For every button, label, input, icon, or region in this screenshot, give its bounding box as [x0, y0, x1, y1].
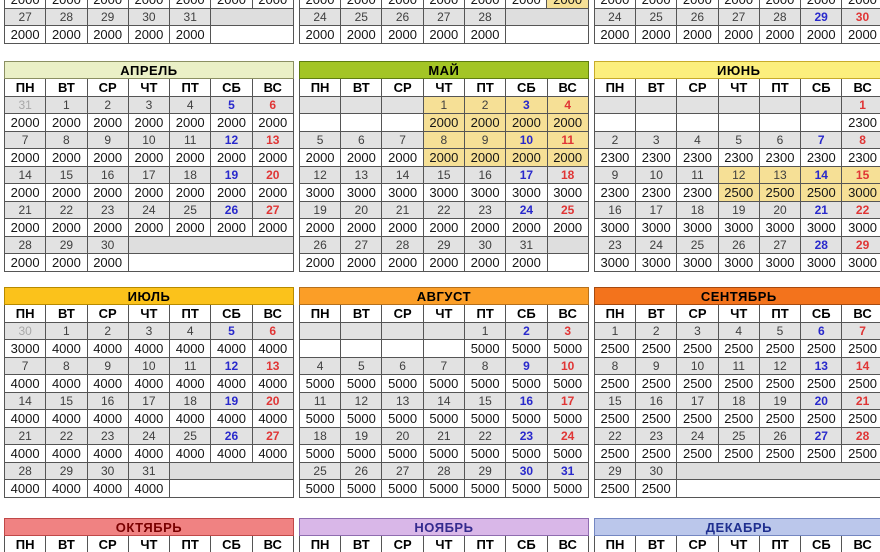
price-cell: 5000	[423, 480, 464, 498]
price-cell: 2500	[636, 480, 677, 498]
price-cell: 2000	[5, 149, 46, 167]
price-cell: 2000	[465, 254, 506, 272]
empty-day-cell	[677, 97, 718, 114]
day-cell: 10	[547, 358, 588, 375]
empty-day-cell	[341, 97, 382, 114]
price-cell: 2000	[635, 0, 676, 9]
day-cell: 6	[252, 97, 293, 114]
price-cell: 2000	[252, 219, 293, 237]
month-april: АПРЕЛЬПНВТСРЧТПТСБВС31123456200020002000…	[4, 61, 294, 272]
weekday-label: СБ	[506, 536, 547, 552]
price-cell: 2000	[170, 26, 211, 44]
day-cell: 15	[423, 167, 464, 184]
price-cell: 5000	[506, 340, 547, 358]
price-cell: 4000	[5, 480, 46, 498]
price-cell: 2300	[677, 149, 718, 167]
price-cell: 4000	[252, 375, 293, 393]
price-cell: 5000	[382, 445, 423, 463]
day-cell: 18	[718, 393, 759, 410]
price-cell: 5000	[547, 375, 588, 393]
price-cell: 2000	[464, 0, 505, 9]
price-cell: 3000	[842, 254, 880, 272]
day-cell: 25	[341, 9, 382, 26]
price-cell: 5000	[506, 375, 547, 393]
price-cell: 2000	[211, 219, 252, 237]
price-cell: 4000	[252, 340, 293, 358]
month-title: ИЮЛЬ	[5, 288, 294, 305]
day-cell: 29	[594, 463, 635, 480]
day-cell: 15	[46, 167, 87, 184]
day-cell: 4	[170, 97, 211, 114]
price-cell: 5000	[506, 445, 547, 463]
day-cell: 5	[211, 97, 252, 114]
empty-price-cell	[382, 340, 423, 358]
day-cell: 3	[547, 323, 588, 340]
day-cell: 12	[759, 358, 800, 375]
day-cell: 19	[211, 393, 252, 410]
weekday-label: СБ	[506, 305, 547, 323]
day-cell: 23	[506, 428, 547, 445]
price-cell: 2000	[423, 219, 464, 237]
day-cell: 27	[718, 9, 759, 26]
price-cell: 5000	[423, 445, 464, 463]
day-cell: 20	[252, 393, 293, 410]
day-cell: 14	[382, 167, 423, 184]
weekday-label: СБ	[211, 305, 252, 323]
price-cell: 2000	[842, 26, 880, 44]
price-cell: 2000	[299, 219, 340, 237]
day-cell: 10	[506, 132, 547, 149]
day-cell: 27	[252, 202, 293, 219]
price-cell: 2000	[5, 26, 46, 44]
price-cell: 2000	[170, 149, 211, 167]
empty-day-cell	[382, 323, 423, 340]
weekday-label: СБ	[506, 79, 547, 97]
day-cell: 17	[636, 202, 677, 219]
price-cell: 5000	[547, 340, 588, 358]
day-cell: 4	[547, 97, 588, 114]
weekday-label: ВС	[842, 536, 880, 552]
price-cell: 2000	[423, 254, 464, 272]
price-cell: 2500	[718, 375, 759, 393]
price-cell: 4000	[211, 410, 252, 428]
day-cell: 31	[506, 237, 547, 254]
weekday-label: СБ	[801, 79, 842, 97]
price-cell: 2500	[636, 410, 677, 428]
day-cell: 16	[87, 167, 128, 184]
day-cell: 16	[87, 393, 128, 410]
weekday-label: ПТ	[465, 305, 506, 323]
day-cell: 17	[128, 393, 169, 410]
price-cell: 2000	[299, 0, 340, 9]
empty-trailing-prices	[547, 254, 588, 272]
price-cell: 2000	[423, 114, 464, 132]
price-cell: 4000	[211, 445, 252, 463]
price-cell: 2000	[299, 149, 340, 167]
day-cell: 18	[170, 167, 211, 184]
weekday-label: ВС	[252, 79, 293, 97]
price-cell: 3000	[341, 184, 382, 202]
day-cell: 13	[341, 167, 382, 184]
day-cell: 15	[46, 393, 87, 410]
weekday-label: ВС	[547, 536, 588, 552]
price-cell: 2500	[759, 184, 800, 202]
day-cell: 30	[128, 9, 169, 26]
empty-price-cell	[299, 340, 340, 358]
day-cell: 30	[5, 323, 46, 340]
price-cell: 2000	[87, 0, 128, 9]
day-cell: 8	[465, 358, 506, 375]
price-cell: 2000	[842, 0, 880, 9]
day-cell: 1	[46, 323, 87, 340]
weekday-label: ПТ	[465, 79, 506, 97]
price-cell: 2300	[759, 149, 800, 167]
day-cell: 9	[506, 358, 547, 375]
price-cell: 2300	[842, 149, 880, 167]
day-cell: 21	[382, 202, 423, 219]
price-cell: 2000	[5, 254, 46, 272]
day-cell: 9	[87, 358, 128, 375]
price-cell: 4000	[46, 375, 87, 393]
month-title: ДЕКАБРЬ	[594, 519, 880, 536]
day-cell: 5	[211, 323, 252, 340]
day-cell: 28	[759, 9, 800, 26]
price-cell: 3000	[636, 219, 677, 237]
weekday-label: ЧТ	[718, 305, 759, 323]
day-cell: 10	[677, 358, 718, 375]
price-cell: 2000	[299, 26, 340, 44]
price-cell: 2500	[801, 375, 842, 393]
price-cell: 2000	[677, 0, 718, 9]
day-cell: 22	[842, 202, 880, 219]
price-cell: 2500	[636, 375, 677, 393]
empty-price-cell	[423, 340, 464, 358]
price-cell: 5000	[465, 480, 506, 498]
day-cell: 23	[87, 428, 128, 445]
price-cell: 2000	[547, 149, 588, 167]
price-cell: 2000	[341, 0, 382, 9]
price-cell: 2300	[594, 184, 635, 202]
day-cell: 14	[842, 358, 880, 375]
day-cell: 21	[801, 202, 842, 219]
day-cell: 14	[5, 393, 46, 410]
weekday-label: ПТ	[759, 536, 800, 552]
month-title: АПРЕЛЬ	[5, 62, 294, 79]
price-cell: 2000	[341, 219, 382, 237]
weekday-label: СР	[382, 79, 423, 97]
day-cell: 12	[718, 167, 759, 184]
day-cell: 2	[87, 323, 128, 340]
day-cell: 25	[299, 463, 340, 480]
day-cell: 31	[547, 463, 588, 480]
day-cell: 5	[299, 132, 340, 149]
day-cell: 19	[341, 428, 382, 445]
price-cell: 2000	[465, 114, 506, 132]
price-cell: 4000	[128, 445, 169, 463]
price-cell: 3000	[842, 184, 880, 202]
weekday-label: ВТ	[46, 79, 87, 97]
day-cell: 17	[506, 167, 547, 184]
price-cell: 2000	[382, 219, 423, 237]
day-cell: 29	[842, 237, 880, 254]
price-cell: 2000	[128, 149, 169, 167]
price-cell: 4000	[5, 410, 46, 428]
price-cell: 4000	[87, 480, 128, 498]
weekday-label: ВС	[547, 305, 588, 323]
price-cell: 2500	[677, 340, 718, 358]
price-cell: 2000	[211, 0, 252, 9]
price-cell: 2500	[594, 480, 635, 498]
price-cell: 4000	[170, 410, 211, 428]
price-cell: 3000	[594, 219, 635, 237]
price-cell: 2300	[718, 149, 759, 167]
day-cell: 1	[46, 97, 87, 114]
empty-day-cell	[299, 97, 340, 114]
day-cell: 24	[128, 202, 169, 219]
day-cell: 12	[341, 393, 382, 410]
price-cell: 2500	[759, 375, 800, 393]
day-cell: 22	[423, 202, 464, 219]
price-cell: 2500	[842, 340, 880, 358]
price-cell: 3000	[718, 254, 759, 272]
weekday-label: СР	[382, 536, 423, 552]
price-cell: 3000	[423, 184, 464, 202]
price-cell: 2000	[170, 0, 211, 9]
price-cell: 4000	[211, 375, 252, 393]
price-cell: 5000	[299, 410, 340, 428]
price-cell: 2000	[382, 149, 423, 167]
price-cell: 4000	[252, 445, 293, 463]
price-cell: 2500	[718, 445, 759, 463]
day-cell: 30	[465, 237, 506, 254]
price-cell: 5000	[465, 375, 506, 393]
day-cell: 11	[170, 358, 211, 375]
empty-price-cell	[759, 114, 800, 132]
weekday-label: СБ	[211, 536, 252, 552]
day-cell: 25	[635, 9, 676, 26]
price-cell: 2000	[635, 26, 676, 44]
day-cell: 26	[211, 428, 252, 445]
weekday-label: ВТ	[341, 79, 382, 97]
price-cell: 2000	[547, 219, 588, 237]
day-cell: 31	[5, 97, 46, 114]
month-november: НОЯБРЬПНВТСРЧТПТСБВС12	[299, 518, 589, 552]
price-cell: 2500	[718, 184, 759, 202]
price-cell: 4000	[46, 340, 87, 358]
day-cell: 13	[801, 358, 842, 375]
empty-price-cell	[382, 114, 423, 132]
price-cell: 2000	[211, 149, 252, 167]
price-cell: 5000	[506, 410, 547, 428]
month-title: АВГУСТ	[299, 288, 588, 305]
day-cell: 23	[465, 202, 506, 219]
price-cell: 2000	[46, 114, 87, 132]
day-cell: 27	[423, 9, 464, 26]
empty-day-cell	[636, 97, 677, 114]
price-cell: 5000	[299, 375, 340, 393]
price-cell: 3000	[636, 254, 677, 272]
price-cell: 2300	[801, 149, 842, 167]
empty-price-cell	[636, 114, 677, 132]
weekday-label: ВС	[842, 305, 880, 323]
weekday-label: ВТ	[636, 536, 677, 552]
weekday-label: ПН	[299, 536, 340, 552]
day-cell: 12	[299, 167, 340, 184]
price-cell: 3000	[547, 184, 588, 202]
price-cell: 2500	[801, 410, 842, 428]
day-cell: 24	[299, 9, 340, 26]
day-cell: 9	[465, 132, 506, 149]
price-cell: 2000	[252, 149, 293, 167]
day-cell: 18	[677, 202, 718, 219]
weekday-label: ЧТ	[423, 536, 464, 552]
day-cell: 14	[801, 167, 842, 184]
day-cell: 2	[465, 97, 506, 114]
empty-trailing-days	[128, 237, 293, 254]
day-cell: 5	[759, 323, 800, 340]
day-cell: 25	[170, 202, 211, 219]
price-cell: 2000	[170, 184, 211, 202]
day-cell: 1	[423, 97, 464, 114]
price-cell: 2000	[5, 184, 46, 202]
day-cell: 24	[128, 428, 169, 445]
day-cell: 5	[341, 358, 382, 375]
price-cell: 2000	[87, 254, 128, 272]
price-cell: 2000	[382, 26, 423, 44]
price-cell: 3000	[506, 184, 547, 202]
price-cell: 2000	[423, 149, 464, 167]
price-cell: 2000	[506, 114, 547, 132]
day-cell: 21	[423, 428, 464, 445]
price-cell: 2500	[677, 445, 718, 463]
day-cell: 18	[299, 428, 340, 445]
weekday-label: СР	[87, 536, 128, 552]
day-cell: 29	[465, 463, 506, 480]
price-cell: 4000	[128, 340, 169, 358]
price-cell: 2000	[5, 0, 46, 9]
price-cell: 2500	[801, 184, 842, 202]
price-cell: 5000	[299, 445, 340, 463]
price-cell: 4000	[46, 410, 87, 428]
price-cell: 2000	[87, 114, 128, 132]
price-cell: 3000	[382, 184, 423, 202]
price-cell: 2000	[252, 0, 293, 9]
day-cell: 25	[170, 428, 211, 445]
price-cell: 2000	[465, 219, 506, 237]
empty-price-cell	[594, 114, 635, 132]
day-cell: 26	[718, 237, 759, 254]
day-cell: 28	[5, 463, 46, 480]
day-cell: 19	[299, 202, 340, 219]
day-cell: 15	[465, 393, 506, 410]
price-cell: 2500	[842, 375, 880, 393]
empty-trailing-prices	[170, 480, 294, 498]
day-cell: 10	[636, 167, 677, 184]
empty-trailing-prices	[506, 26, 589, 44]
day-cell: 20	[252, 167, 293, 184]
day-cell: 3	[128, 323, 169, 340]
month-title: СЕНТЯБРЬ	[594, 288, 880, 305]
day-cell: 19	[211, 167, 252, 184]
day-cell: 7	[801, 132, 842, 149]
price-cell: 2000	[46, 219, 87, 237]
price-cell: 2000	[5, 114, 46, 132]
price-cell: 2000	[128, 184, 169, 202]
price-cell: 3000	[801, 219, 842, 237]
day-cell: 12	[211, 132, 252, 149]
month-july: ИЮЛЬПНВТСРЧТПТСБВС3012345630004000400040…	[4, 287, 294, 498]
price-cell: 4000	[128, 375, 169, 393]
price-cell: 2000	[506, 0, 547, 9]
price-cell: 5000	[547, 410, 588, 428]
price-cell: 3000	[759, 254, 800, 272]
day-cell: 3	[128, 97, 169, 114]
price-cell: 2000	[341, 254, 382, 272]
price-cell: 3000	[299, 184, 340, 202]
price-cell: 2500	[801, 340, 842, 358]
day-cell: 16	[465, 167, 506, 184]
price-cell: 2000	[594, 0, 635, 9]
price-cell: 3000	[677, 254, 718, 272]
price-cell: 2000	[128, 114, 169, 132]
price-cell: 2300	[594, 149, 635, 167]
day-cell: 8	[842, 132, 880, 149]
day-cell: 13	[252, 358, 293, 375]
price-cell: 2000	[759, 26, 800, 44]
weekday-label: СР	[677, 536, 718, 552]
weekday-label: ВС	[252, 536, 293, 552]
price-cell: 5000	[382, 480, 423, 498]
day-cell: 17	[547, 393, 588, 410]
weekday-label: ВТ	[636, 79, 677, 97]
price-cell: 3000	[718, 219, 759, 237]
day-cell: 13	[382, 393, 423, 410]
day-cell: 4	[677, 132, 718, 149]
day-cell: 13	[759, 167, 800, 184]
weekday-label: ЧТ	[128, 536, 169, 552]
empty-price-cell	[341, 340, 382, 358]
price-cell: 4000	[46, 445, 87, 463]
empty-day-cell	[341, 323, 382, 340]
price-cell: 2300	[636, 149, 677, 167]
empty-price-cell	[801, 114, 842, 132]
day-cell: 11	[677, 167, 718, 184]
weekday-label: СБ	[211, 79, 252, 97]
price-cell: 5000	[423, 375, 464, 393]
day-cell: 28	[464, 9, 505, 26]
weekday-label: ВТ	[46, 536, 87, 552]
price-cell: 5000	[506, 480, 547, 498]
empty-trailing-days	[677, 463, 880, 480]
day-cell: 28	[842, 428, 880, 445]
calendar-row-jan-mar: 2000200020002000200020002000272829303120…	[0, 0, 880, 44]
day-cell: 28	[5, 237, 46, 254]
price-cell: 2000	[801, 26, 842, 44]
day-cell: 8	[423, 132, 464, 149]
day-cell: 24	[594, 9, 635, 26]
weekday-label: ПТ	[170, 536, 211, 552]
price-cell: 2000	[506, 219, 547, 237]
day-cell: 7	[5, 132, 46, 149]
price-cell: 2000	[170, 219, 211, 237]
price-cell: 5000	[465, 410, 506, 428]
weekday-label: ПТ	[759, 305, 800, 323]
day-cell: 28	[382, 237, 423, 254]
day-cell: 1	[465, 323, 506, 340]
weekday-label: ПТ	[170, 79, 211, 97]
calendar-row-jul-sep: ИЮЛЬПНВТСРЧТПТСБВС3012345630004000400040…	[0, 287, 880, 498]
price-cell: 2000	[594, 26, 635, 44]
